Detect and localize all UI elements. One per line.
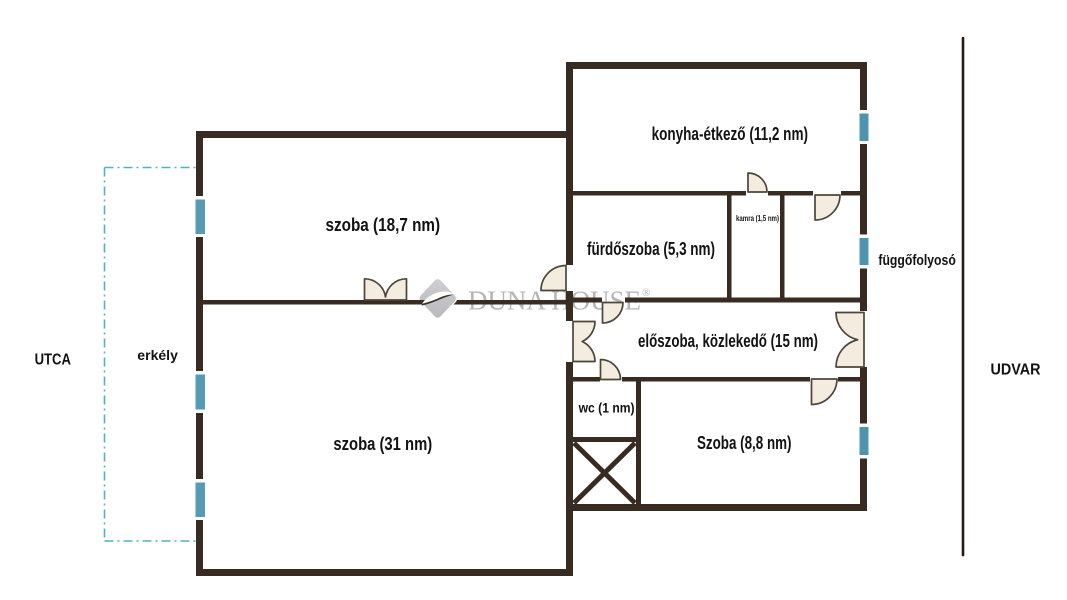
svg-text:szoba (31 nm): szoba (31 nm) (333, 434, 432, 454)
svg-text:előszoba, közlekedő (15 nm): előszoba, közlekedő (15 nm) (638, 331, 818, 351)
svg-text:wc (1 nm): wc (1 nm) (578, 400, 635, 416)
svg-text:fürdőszoba (5,3 nm): fürdőszoba (5,3 nm) (587, 239, 715, 259)
svg-text:Szoba (8,8 nm): Szoba (8,8 nm) (697, 433, 792, 453)
svg-text:®: ® (642, 287, 650, 299)
svg-text:szoba (18,7 nm): szoba (18,7 nm) (326, 215, 441, 235)
svg-text:erkély: erkély (137, 347, 178, 363)
svg-text:UDVAR: UDVAR (991, 362, 1041, 379)
svg-text:konyha-étkező (11,2 nm): konyha-étkező (11,2 nm) (652, 124, 808, 144)
svg-text:kamra (1,5 nm): kamra (1,5 nm) (736, 213, 779, 223)
svg-text:UTCA: UTCA (35, 352, 71, 369)
svg-text:függőfolyosó: függőfolyosó (878, 252, 955, 269)
